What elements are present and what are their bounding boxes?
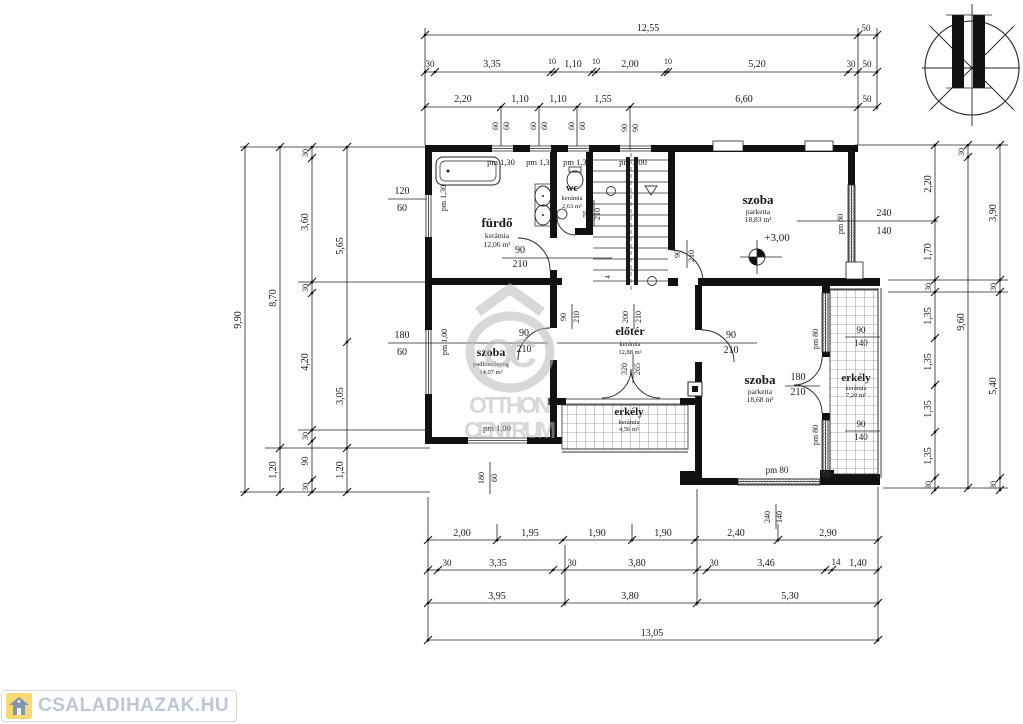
dim-label: 60 [567, 122, 576, 130]
dim-label: 30 [710, 558, 720, 568]
dim-label: 60 [540, 122, 549, 130]
dim-label: 1,35 [923, 353, 934, 371]
dim-label: 140 [775, 511, 784, 523]
dim-label: 6,60 [735, 94, 753, 105]
dim-label: 265 [633, 363, 642, 375]
dimension-tick-dot [496, 539, 499, 542]
dimension-tick-dot [538, 106, 541, 109]
dim-label: 3,05 [335, 387, 346, 405]
dim-label: 30 [957, 148, 966, 156]
room-name-wc: wc [566, 183, 578, 194]
dimension-tick-dot [706, 569, 709, 572]
stair-start-circle [607, 187, 616, 196]
parapet-label: pm 1,00 [619, 157, 647, 167]
dim-label: 50 [862, 23, 872, 33]
watermark-roof-icon [478, 289, 542, 312]
dim-label: 14 [832, 557, 842, 567]
dim-label: 1,40 [849, 558, 867, 569]
dimension-tick-dot [427, 639, 430, 642]
dimension-tick-dot [876, 106, 879, 109]
dim-label: 3,95 [488, 591, 506, 602]
dim-label: 13,05 [641, 628, 664, 639]
dim-label: 12,55 [637, 23, 660, 34]
room-area: 18,83 m² [745, 215, 773, 224]
house-icon [6, 693, 32, 719]
dim-label: 120 [395, 186, 410, 197]
dimension-tick-dot [424, 106, 427, 109]
dimension-chains: 12,5550303,35101,10102,00105,2030502,201… [233, 23, 1008, 644]
dim-label: 1,10 [564, 59, 582, 70]
dim-label: pm 1,30 [439, 185, 448, 211]
room-material: kerámia [846, 385, 867, 392]
wc-sink [557, 209, 567, 219]
dim-label: 1,70 [923, 243, 934, 261]
dim-label: 2,40 [727, 528, 745, 539]
dimension-tick-dot [311, 429, 314, 432]
dim-label: 1,20 [335, 461, 346, 479]
dimension-tick-dot [311, 440, 314, 443]
dim-label: 90 [559, 313, 568, 321]
dim-label: 30 [301, 284, 310, 292]
floor-plan-drawing: 12,5550303,35101,10102,00105,2030502,201… [0, 0, 1023, 724]
dimension-tick-dot [631, 539, 634, 542]
dim-label: 140 [854, 432, 868, 442]
dim-label: 1,10 [549, 94, 567, 105]
dim-label: 1,35 [923, 307, 934, 325]
dimension-tick-dot [434, 71, 437, 74]
dim-label: 1,35 [923, 447, 934, 465]
dimension-tick-dot [967, 144, 970, 147]
room-name-furdo: fürdő [481, 215, 513, 230]
dim-label: 3,90 [988, 204, 999, 222]
dimension-tick-dot [427, 569, 430, 572]
dimension-tick-dot [591, 71, 594, 74]
balcony-tiled-areas [562, 288, 881, 478]
watermark: OC OTTHON CENTRUM [464, 289, 556, 443]
dim-label: 140 [854, 338, 868, 348]
dim-label: 210 [593, 208, 602, 220]
dimension-tick-dot [934, 384, 937, 387]
dim-label: 30 [989, 481, 998, 489]
parapet-label: pm 80 [766, 465, 789, 475]
room-material: kerámia [485, 231, 510, 240]
dim-label: 90 [857, 325, 867, 335]
dim-label: 2,00 [453, 528, 471, 539]
dimension-tick-dot [311, 281, 314, 284]
dimension-tick-dot [877, 569, 880, 572]
dimension-tick-dot [629, 106, 632, 109]
dim-label: 1,20 [268, 461, 279, 479]
dim-label: 210 [687, 250, 696, 262]
dimension-tick-dot [876, 71, 879, 74]
dimension-tick-dot [346, 447, 349, 450]
dim-label: 200 [621, 311, 630, 323]
room-material: kerámia [562, 195, 583, 202]
dimension-tick-dot [934, 489, 937, 492]
dim-label: 210 [791, 387, 806, 398]
dimension-tick-dot [999, 489, 1002, 492]
dim-label: 3,60 [300, 213, 311, 231]
room-name-szoba-br: szoba [744, 372, 776, 387]
chimney-symbol [922, 4, 1020, 126]
dimension-tick-dot [999, 144, 1002, 147]
dim-label: 5,65 [335, 237, 346, 255]
dimension-tick-dot [311, 157, 314, 160]
dim-label: 60 [397, 347, 407, 358]
parapet-label: pm 1,30 [487, 157, 515, 167]
dim-label: 180 [791, 372, 806, 383]
dim-label: 60 [529, 122, 538, 130]
room-area: 12,06 m² [484, 240, 512, 249]
dimension-tick-dot [311, 146, 314, 149]
room-name-eloter: előtér [615, 324, 645, 338]
dimension-tick-dot [427, 539, 430, 542]
dim-label: 60 [490, 474, 499, 482]
dimension-tick-dot [999, 291, 1002, 294]
room-area: 12,88 m² [618, 349, 641, 356]
dim-label: 2,00 [621, 59, 639, 70]
dim-label: 9,90 [233, 311, 244, 329]
dim-label: 210 [724, 345, 739, 356]
dimension-tick-dot [696, 602, 699, 605]
dim-label: 240 [763, 511, 772, 523]
dim-label: 2,20 [454, 94, 472, 105]
room-area: 7,20 m² [846, 392, 866, 399]
stair-direction-triangle [645, 186, 657, 195]
room-name-erkely-mid: erkély [614, 406, 644, 418]
dim-label: 5,20 [748, 59, 766, 70]
dimension-tick-dot [279, 146, 282, 149]
dim-label: 30 [426, 59, 436, 69]
floor-plan-page: 12,5550303,35101,10102,00105,2030502,201… [0, 0, 1023, 724]
dim-label: 4,20 [300, 353, 311, 371]
dimension-tick-dot [999, 279, 1002, 282]
parapet-label: pm 1,30 [563, 157, 591, 167]
dim-label: 30 [443, 558, 453, 568]
dim-label: pm 80 [836, 214, 845, 234]
level-value: +3,00 [764, 232, 790, 244]
dimension-tick-dot [934, 431, 937, 434]
dimension-tick-dot [424, 34, 427, 37]
dimension-tick-dot [831, 569, 834, 572]
dim-label: 90 [726, 330, 736, 341]
room-name-erkely-right: erkély [841, 372, 871, 384]
dim-label: 5,40 [988, 377, 999, 395]
wc-door-arc [557, 217, 575, 235]
dim-label: 60 [502, 122, 511, 130]
dim-label: 10 [592, 57, 600, 66]
dim-label: 60 [397, 203, 407, 214]
dim-label: 30 [301, 149, 310, 157]
dimension-tick-dot [427, 602, 430, 605]
dimension-tick-dot [279, 491, 282, 494]
dimension-tick-dot [934, 144, 937, 147]
room-material: kerámia [620, 341, 641, 348]
dim-label: 90 [673, 250, 682, 258]
dim-label: 210 [572, 311, 581, 323]
dimension-tick-dot [857, 71, 860, 74]
dim-label: 90 [857, 419, 867, 429]
dim-label: 1,55 [594, 94, 612, 105]
dim-label: 10 [548, 57, 556, 66]
dimension-tick-dot [667, 71, 670, 74]
dim-label: 3,35 [483, 59, 501, 70]
dimension-tick-dot [311, 479, 314, 482]
dimension-tick-dot [967, 156, 970, 159]
site-logo-text: CSALADIHAZAK.HU [38, 695, 229, 717]
dimension-tick-dot [857, 106, 860, 109]
site-logo[interactable]: CSALADIHAZAK.HU [1, 690, 237, 722]
dim-label: 75 [582, 210, 591, 218]
dimension-tick-dot [934, 291, 937, 294]
dim-label: pm 1,00 [440, 329, 449, 355]
dim-label: 90 [631, 124, 640, 132]
room-material: kerámia [619, 419, 640, 426]
dim-label: 320 [620, 363, 629, 375]
dim-label: 3,46 [757, 558, 775, 569]
dimension-tick-dot [424, 71, 427, 74]
room-area: 18,68 m² [747, 395, 775, 404]
dim-label: 30 [989, 283, 998, 291]
dim-label: 60 [491, 122, 500, 130]
dimension-tick-dot [346, 491, 349, 494]
dim-label: 3,80 [621, 591, 639, 602]
dimension-tick-dot [934, 219, 937, 222]
dim-label: 90 [620, 124, 629, 132]
dimension-tick-dot [244, 146, 247, 149]
dim-label: 90 [515, 245, 525, 256]
dim-label: 30 [847, 59, 857, 69]
dimension-tick-dot [967, 487, 970, 490]
room-area: 2,63 m² [562, 203, 582, 210]
staircase [593, 153, 668, 291]
dim-label: 1,10 [511, 94, 529, 105]
dim-label: 210 [513, 259, 528, 270]
dimension-tick-dot [244, 491, 247, 494]
dimension-tick-dot [564, 569, 567, 572]
dimension-tick-dot [876, 34, 879, 37]
parapet-label: pm 80 [811, 329, 820, 349]
parapet-label: pm 1,30 [526, 157, 554, 167]
dim-label: 50 [863, 94, 873, 104]
dimension-tick-dot [934, 477, 937, 480]
dim-label: 180 [477, 472, 486, 484]
dim-label: 30 [924, 283, 933, 291]
dimension-tick-dot [437, 569, 440, 572]
dim-label: 3,80 [628, 558, 646, 569]
dimension-tick-dot [694, 539, 697, 542]
dimension-tick-dot [664, 71, 667, 74]
stair-mark: 4 [604, 275, 612, 279]
watermark-line1: OTTHON [469, 392, 551, 418]
dimension-tick-dot [777, 539, 780, 542]
dim-label: 8,70 [268, 289, 279, 307]
dim-label: 30 [568, 558, 578, 568]
dimension-tick-dot [564, 602, 567, 605]
dimension-tick-dot [857, 34, 860, 37]
room-area: 4,56 m² [619, 426, 639, 433]
dim-label: 1,35 [923, 400, 934, 418]
dim-label: 30 [301, 432, 310, 440]
dimension-tick-dot [576, 106, 579, 109]
balcony-door-arcs [794, 357, 822, 413]
dimension-tick-dot [847, 71, 850, 74]
electrical-box [688, 382, 702, 396]
dimension-tick-dot [877, 539, 880, 542]
dim-label: 240 [877, 208, 892, 219]
dimension-tick-dot [550, 71, 553, 74]
watermark-initials: OC [483, 332, 537, 376]
dimension-tick-dot [500, 106, 503, 109]
dimension-tick-dot [999, 477, 1002, 480]
dim-label: 9,60 [956, 313, 967, 331]
dimension-tick-dot [877, 602, 880, 605]
watermark-line2: CENTRUM [464, 417, 556, 443]
dim-label: 3,35 [489, 558, 507, 569]
dimension-tick-dot [311, 491, 314, 494]
dim-label: 210 [634, 311, 643, 323]
dimension-tick-dot [696, 569, 699, 572]
wall-piers [713, 141, 863, 279]
dimension-tick-dot [311, 292, 314, 295]
dim-label: 90 [300, 456, 310, 466]
dimension-tick-dot [934, 279, 937, 282]
dim-label: 30 [924, 481, 933, 489]
dim-label: 1,90 [654, 528, 672, 539]
dim-label: 1,90 [588, 528, 606, 539]
dim-label: 60 [578, 122, 587, 130]
dim-label: 1,95 [521, 528, 539, 539]
dimension-tick-dot [279, 447, 282, 450]
terrace-door-arcs [602, 369, 660, 398]
dimension-tick-dot [824, 569, 827, 572]
dim-label: 180 [395, 330, 410, 341]
dim-label: 140 [877, 226, 892, 237]
dimension-tick-dot [562, 539, 565, 542]
dimension-tick-dot [346, 341, 349, 344]
dimension-tick-dot [934, 337, 937, 340]
dim-label: 10 [664, 57, 672, 66]
room-name-szoba-tr: szoba [742, 192, 774, 207]
dim-label: 50 [863, 59, 873, 69]
dimension-tick-dot [346, 146, 349, 149]
parapet-label: pm 80 [811, 425, 820, 445]
dim-label: 30 [301, 483, 310, 491]
dim-label: 2,90 [819, 528, 837, 539]
dimension-tick-dot [877, 639, 880, 642]
dimension-tick-dot [554, 71, 557, 74]
dimension-tick-dot [552, 569, 555, 572]
dimension-tick-dot [595, 71, 598, 74]
dim-label: 2,20 [923, 175, 934, 193]
dim-label: 5,30 [781, 591, 799, 602]
